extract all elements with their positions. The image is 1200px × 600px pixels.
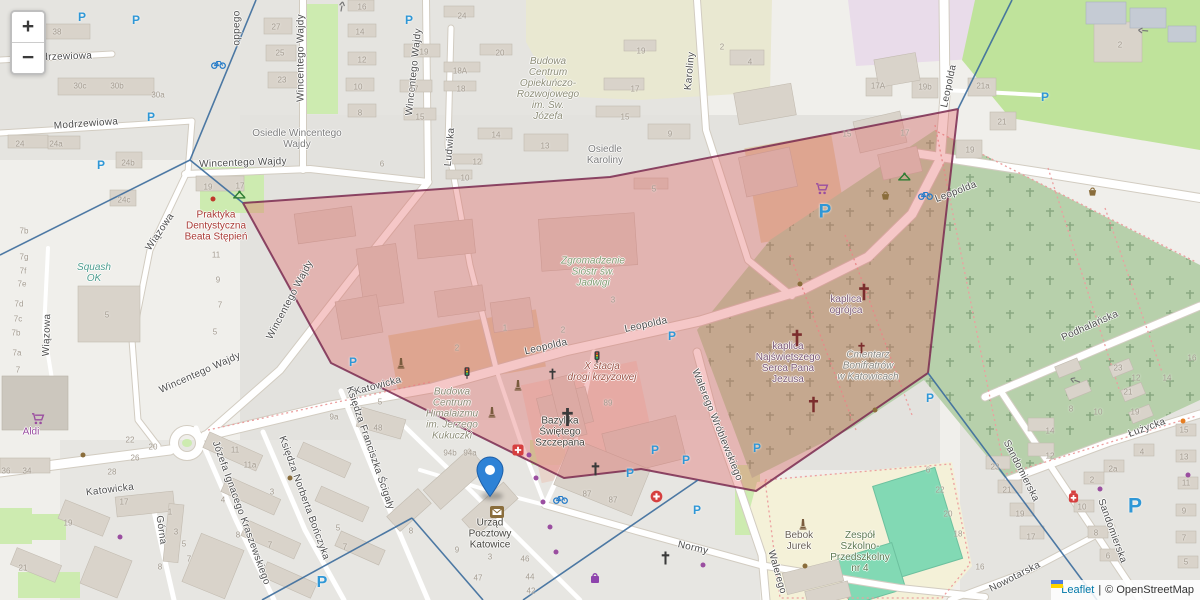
dot-purple-icon: [527, 453, 532, 458]
house-number: 21a: [976, 82, 989, 91]
house-number: 8: [409, 527, 413, 536]
house-number: 9: [1182, 507, 1186, 516]
zoom-in-button[interactable]: +: [12, 12, 44, 42]
dot-purple-icon: [548, 525, 553, 530]
marker-pin-icon: [475, 456, 505, 498]
street-label: Wiązowa: [41, 313, 53, 356]
street-label: Nowotarska: [988, 559, 1043, 594]
house-number: 4: [1140, 448, 1144, 457]
house-number: 30a: [151, 91, 164, 100]
house-number: 14: [1163, 374, 1172, 383]
house-number: 6: [380, 160, 384, 169]
house-number: 87: [583, 490, 592, 499]
place-label: BebokJurek: [785, 530, 813, 552]
house-number: 11: [212, 251, 220, 260]
street-label: Wincentego Wajdy: [296, 14, 307, 102]
house-number: 11: [1182, 479, 1190, 488]
house-number: 17: [1027, 533, 1036, 542]
house-number: 23: [278, 76, 287, 85]
house-number: 94b: [443, 449, 456, 458]
house-number: 21: [1124, 388, 1133, 397]
house-number: 18: [954, 530, 963, 539]
house-number: 21: [998, 118, 1007, 127]
house-number: 17: [901, 129, 910, 138]
house-number: 1: [168, 508, 172, 517]
parking-icon: P: [1041, 91, 1049, 103]
house-number: 19: [1131, 408, 1140, 417]
house-number: 7: [16, 366, 20, 375]
dot-brown-icon: [873, 408, 878, 413]
house-number: 5: [336, 524, 340, 533]
house-number: 9: [216, 276, 220, 285]
house-number: 2: [720, 43, 724, 52]
parking-icon: P: [819, 203, 832, 222]
house-number: 5: [378, 398, 382, 407]
house-number: 6: [1106, 552, 1110, 561]
house-number: 2: [561, 326, 565, 335]
street-label: Leopolda: [524, 337, 569, 358]
house-number: 7a: [13, 349, 22, 358]
dot-purple-icon: [118, 535, 123, 540]
house-number: 18: [457, 85, 466, 94]
house-number: 5: [182, 540, 186, 549]
house-number: 3: [174, 528, 178, 537]
dot-purple-icon: [534, 476, 539, 481]
house-number: 7g: [20, 253, 29, 262]
place-label: UrządPocztowyKatowice: [469, 518, 512, 551]
dot-brown-icon: [81, 453, 86, 458]
house-number: 25: [276, 49, 285, 58]
dot-orange-icon: [1181, 419, 1186, 424]
house-number: 9a: [330, 413, 339, 422]
parking-icon: P: [317, 575, 328, 591]
map[interactable]: ModrzewiowaModrzewiowaoppegoWincentego W…: [0, 0, 1200, 600]
zoom-out-button[interactable]: −: [12, 42, 44, 73]
house-number: 14: [492, 131, 501, 140]
parking-icon: P: [668, 330, 676, 342]
house-number: 14: [356, 28, 365, 37]
house-number: 17: [410, 85, 419, 94]
house-number: 20: [149, 443, 158, 452]
house-number: 89: [604, 399, 613, 408]
house-number: 12: [358, 56, 367, 65]
place-label: OsiedleKaroliny: [587, 144, 623, 166]
house-number: 6: [926, 466, 930, 475]
street-label: Wincentego Wajdy: [404, 28, 424, 116]
street-label: Wiązowa: [144, 211, 177, 253]
house-number: 7b: [20, 227, 29, 236]
parking-icon: P: [78, 11, 86, 23]
place-label: CmentarzBonifratróww Katowicach: [837, 350, 898, 383]
parking-icon: P: [753, 442, 761, 454]
house-number: 24c: [118, 196, 131, 205]
house-number: 7: [268, 541, 272, 550]
place-label: ZespółSzkolno-Przedszkolnynr 4: [830, 530, 889, 574]
street-label: Ludwika: [443, 127, 457, 167]
house-number: 8: [358, 109, 362, 118]
street-label: Podhalańska: [1060, 309, 1120, 344]
house-number: 30b: [110, 82, 123, 91]
house-number: 13: [1180, 453, 1189, 462]
dot-brown-icon: [288, 476, 293, 481]
house-number: 24b: [121, 159, 134, 168]
house-number: 11: [231, 446, 239, 455]
house-number: 44: [526, 573, 535, 582]
parking-icon: P: [147, 111, 155, 123]
house-number: 10: [1094, 408, 1103, 417]
house-number: 2: [455, 344, 459, 353]
house-number: 12: [1046, 452, 1055, 461]
house-number: 3: [488, 553, 492, 562]
dot-purple-icon: [541, 500, 546, 505]
house-number: 48: [374, 424, 383, 433]
leaflet-link[interactable]: Leaflet: [1061, 584, 1094, 596]
street-label: Walerego: [766, 549, 789, 595]
place-label: Aldi: [23, 427, 40, 438]
house-number: 87: [609, 496, 618, 505]
parking-icon: P: [682, 454, 690, 466]
house-number: 4: [748, 58, 752, 67]
place-label: BudowaCentrumHimalaizmuim. JerzegoKukucz…: [426, 387, 478, 442]
house-number: 7e: [18, 280, 27, 289]
house-number: 19: [966, 146, 975, 155]
place-label: X stacjadrogi krzyżowej: [568, 361, 637, 383]
street-label: oppego: [232, 10, 243, 45]
house-number: 19: [204, 183, 213, 192]
parking-icon: P: [626, 467, 634, 479]
house-number: 46: [521, 555, 530, 564]
place-label: PraktykaDentystycznaBeata Stępień: [185, 210, 248, 243]
street-label: Leopolda: [934, 179, 979, 205]
house-number: 10: [1078, 503, 1087, 512]
house-number: 19: [64, 519, 73, 528]
attribution-bar: Leaflet | © OpenStreetMap: [1051, 580, 1200, 600]
house-number: 16: [1188, 354, 1197, 363]
street-label: Karoliny: [683, 51, 697, 90]
house-number: 17A: [871, 82, 885, 91]
map-labels-layer: ModrzewiowaModrzewiowaoppegoWincentego W…: [0, 0, 1200, 600]
street-label: Górna: [154, 515, 169, 546]
house-number: 24: [458, 12, 467, 21]
house-number: 19: [637, 47, 646, 56]
house-number: 24: [16, 140, 25, 149]
street-label: Wincentego Wajdy: [265, 259, 316, 342]
house-number: 30c: [74, 82, 87, 91]
place-label: SquashOK: [77, 262, 111, 284]
street-label: Wincentego Wajdy: [158, 350, 243, 396]
parking-icon: P: [97, 159, 105, 171]
house-number: 9: [668, 130, 672, 139]
house-number: 1: [503, 324, 507, 333]
zoom-control: + −: [10, 10, 46, 75]
house-number: 15: [416, 113, 425, 122]
house-number: 22: [126, 436, 135, 445]
dot-purple-icon: [701, 563, 706, 568]
house-number: 7: [187, 555, 191, 564]
house-number: 16: [358, 3, 367, 12]
house-number: 3: [270, 488, 274, 497]
house-number: 5: [1184, 558, 1188, 567]
house-number: 15: [1180, 426, 1189, 435]
house-number: 7b: [12, 329, 21, 338]
house-number: 36: [2, 467, 11, 476]
house-number: 5: [105, 311, 109, 320]
house-number: 12: [1132, 374, 1141, 383]
parking-icon: P: [132, 14, 140, 26]
house-number: 17: [631, 85, 640, 94]
post-office-marker[interactable]: [475, 456, 505, 498]
house-number: 20: [944, 510, 953, 519]
house-number: 26: [131, 454, 140, 463]
house-number: 7: [343, 543, 347, 552]
street-label: Józefa Ignacego Kraszewskiego: [210, 440, 272, 587]
street-label: Wincentego Wajdy: [199, 156, 287, 170]
attribution-separator: |: [1098, 584, 1101, 596]
house-number: 23: [1114, 364, 1123, 373]
house-number: 8: [1094, 529, 1098, 538]
house-number: 14: [1046, 427, 1055, 436]
house-number: 8: [1069, 405, 1073, 414]
house-number: 18A: [453, 67, 467, 76]
street-label: Leopolda: [939, 64, 959, 109]
house-number: 4: [221, 496, 225, 505]
house-number: 8: [236, 531, 240, 540]
parking-icon: P: [405, 14, 413, 26]
house-number: 10: [354, 83, 363, 92]
parking-icon: P: [1128, 496, 1142, 517]
house-number: 2: [1090, 476, 1094, 485]
dot-red-icon: [211, 197, 216, 202]
house-number: 47: [474, 574, 483, 583]
house-number: 13: [541, 142, 550, 151]
house-number: 7: [1182, 534, 1186, 543]
osm-copyright: © OpenStreetMap: [1105, 584, 1194, 596]
place-label: kaplicaNajświętszegoSerca PanaJezusa: [756, 341, 820, 385]
house-number: 5: [652, 185, 656, 194]
house-number: 7c: [14, 315, 22, 324]
place-label: ZgromadzenieSióstr św.Jadwigi: [561, 256, 625, 289]
dot-purple-icon: [1186, 473, 1191, 478]
house-number: 8: [158, 563, 162, 572]
house-number: 23: [991, 463, 1000, 472]
house-number: 42: [527, 587, 536, 596]
dot-brown-icon: [798, 282, 803, 287]
house-number: 7: [218, 301, 222, 310]
street-label: Księdza Franciszka Ścigały: [344, 385, 397, 511]
house-number: 16: [976, 563, 985, 572]
street-label: Katowicka: [353, 374, 402, 397]
house-number: 19b: [918, 83, 931, 92]
house-number: 9: [455, 546, 459, 555]
dot-purple-icon: [1098, 487, 1103, 492]
house-number: 17: [120, 498, 129, 507]
house-number: 24a: [49, 140, 62, 149]
house-number: 7d: [15, 300, 24, 309]
street-label: Katowicka: [85, 482, 134, 499]
house-number: 34: [23, 467, 32, 476]
dot-brown-icon: [803, 564, 808, 569]
dot-purple-icon: [554, 550, 559, 555]
house-number: 27: [272, 23, 281, 32]
house-number: 28: [108, 468, 117, 477]
street-label: Łużycka: [1127, 416, 1167, 440]
house-number: 2a: [1109, 465, 1118, 474]
street-label: Leopolda: [624, 315, 669, 335]
parking-icon: P: [926, 392, 934, 404]
house-number: 15: [621, 113, 630, 122]
house-number: 5: [213, 328, 217, 337]
house-number: 10: [461, 174, 470, 183]
street-label: Walerego Wróblewskiego: [690, 368, 745, 483]
house-number: 11a: [244, 461, 257, 470]
street-label: Modrzewiowa: [53, 116, 118, 131]
house-number: 20: [496, 49, 505, 58]
parking-icon: P: [693, 504, 701, 516]
parking-icon: P: [349, 356, 357, 368]
house-number: 3: [611, 296, 615, 305]
house-number: 38: [53, 28, 62, 37]
house-number: 2: [1118, 41, 1122, 50]
house-number: 19: [1016, 510, 1025, 519]
parking-icon: P: [651, 444, 659, 456]
house-number: 19: [420, 48, 429, 57]
street-label: Sandomierska: [1095, 497, 1128, 564]
street-label: Normy: [677, 539, 710, 557]
house-number: 7f: [20, 267, 27, 276]
house-number: 12: [473, 158, 482, 167]
house-number: 21: [1003, 486, 1012, 495]
house-number: 22: [936, 486, 945, 495]
street-label: Księdza Norberta Bończyka: [276, 435, 331, 562]
place-label: Osiedle WincentegoWajdy: [252, 128, 342, 150]
house-number: 21: [19, 564, 28, 573]
place-label: BudowaCentrumOpiekuńczo-Rozwojowegoim. Ś…: [517, 56, 579, 122]
house-number: 15: [843, 130, 852, 139]
